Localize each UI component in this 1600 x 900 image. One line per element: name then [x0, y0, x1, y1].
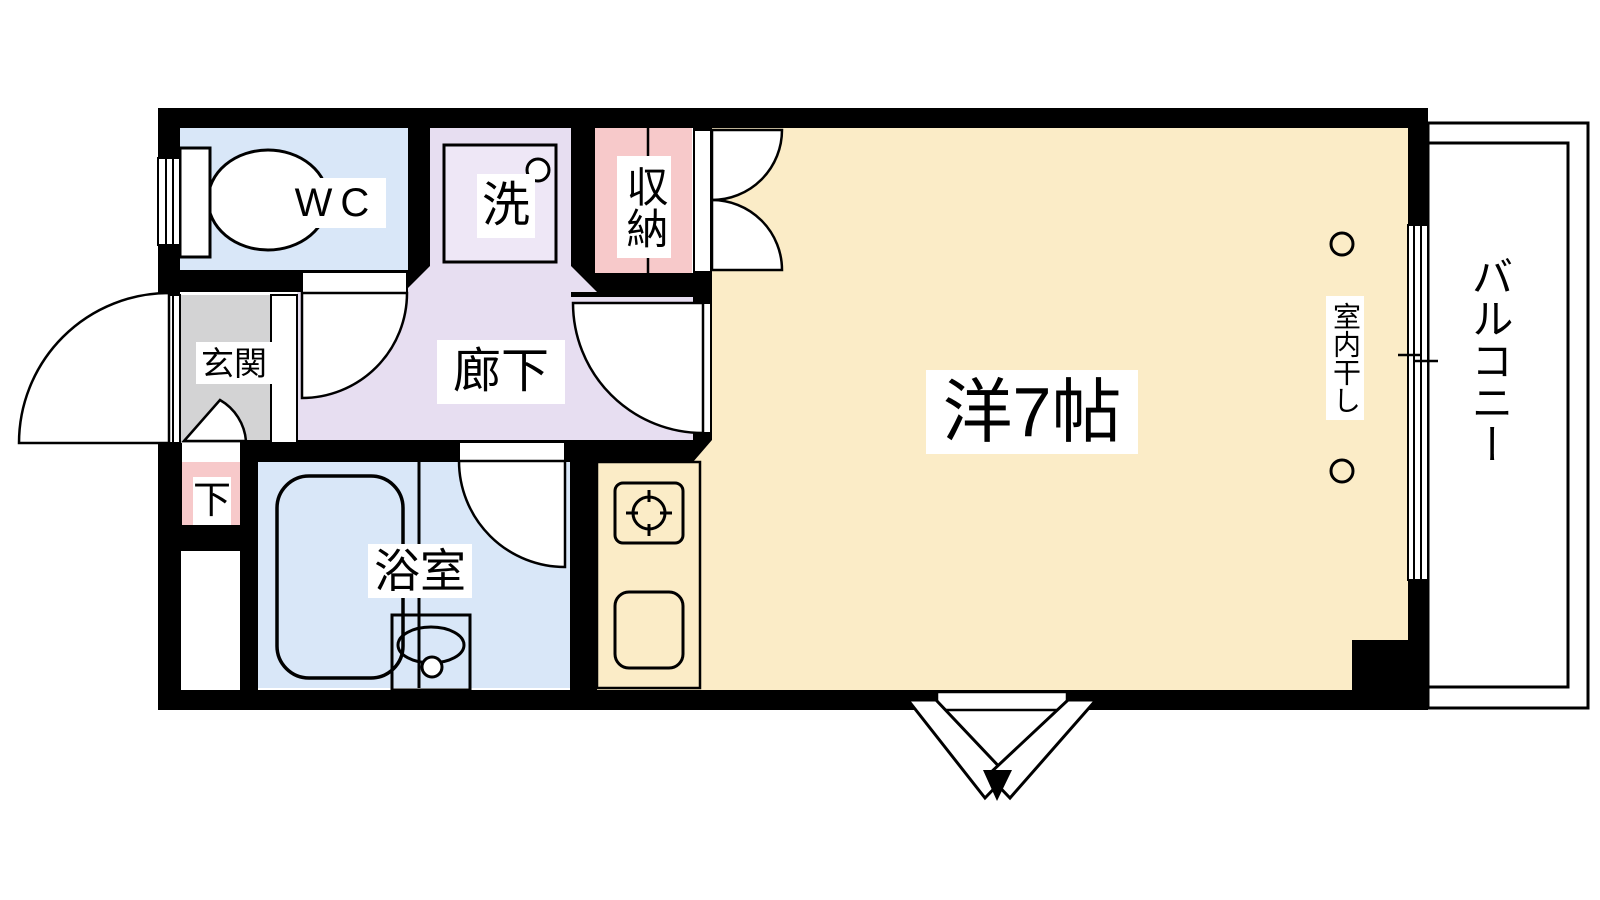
wc-window	[158, 158, 180, 245]
meter-box-opening	[181, 551, 240, 690]
pillar	[1352, 640, 1428, 710]
balcony-window	[1408, 225, 1428, 580]
laundry-label: 洗	[477, 174, 535, 238]
balcony-label: バルコニー	[1462, 250, 1516, 470]
wc-label: WC	[286, 178, 386, 228]
bathroom-label: 浴室	[368, 544, 472, 598]
south-window	[937, 692, 1067, 710]
entrance-door-swing	[19, 293, 169, 443]
wall-below-storage	[571, 273, 712, 297]
wall-top	[158, 108, 1428, 128]
entrance-label: 玄関	[196, 342, 272, 384]
toilet-tank	[180, 148, 210, 257]
entrance-threshold	[182, 443, 240, 462]
floor-plan-drawing	[0, 0, 1600, 900]
entrance-hall-step	[271, 295, 297, 443]
closet-door-opening	[694, 130, 711, 272]
main-room-label: 洋7帖	[926, 370, 1138, 454]
wall-bath-kitchen	[570, 462, 597, 690]
wc-door-opening	[302, 272, 407, 293]
shoe-cabinet-label: 下	[193, 477, 231, 525]
indoor-drying-label: 室内干し	[1326, 296, 1364, 420]
wall-laundry-storage	[571, 128, 595, 292]
shower-drain	[422, 657, 442, 677]
wall-wc-laundry	[408, 128, 430, 292]
floor-plan: WC 洗 収納 玄関 廊下 下 浴室 洋7帖 室内干し バルコニー	[0, 0, 1600, 900]
storage-label: 収納	[617, 156, 671, 258]
wall-bottom	[158, 690, 1428, 710]
bathroom-door-opening	[459, 442, 565, 461]
hallway-label: 廊下	[437, 340, 565, 404]
